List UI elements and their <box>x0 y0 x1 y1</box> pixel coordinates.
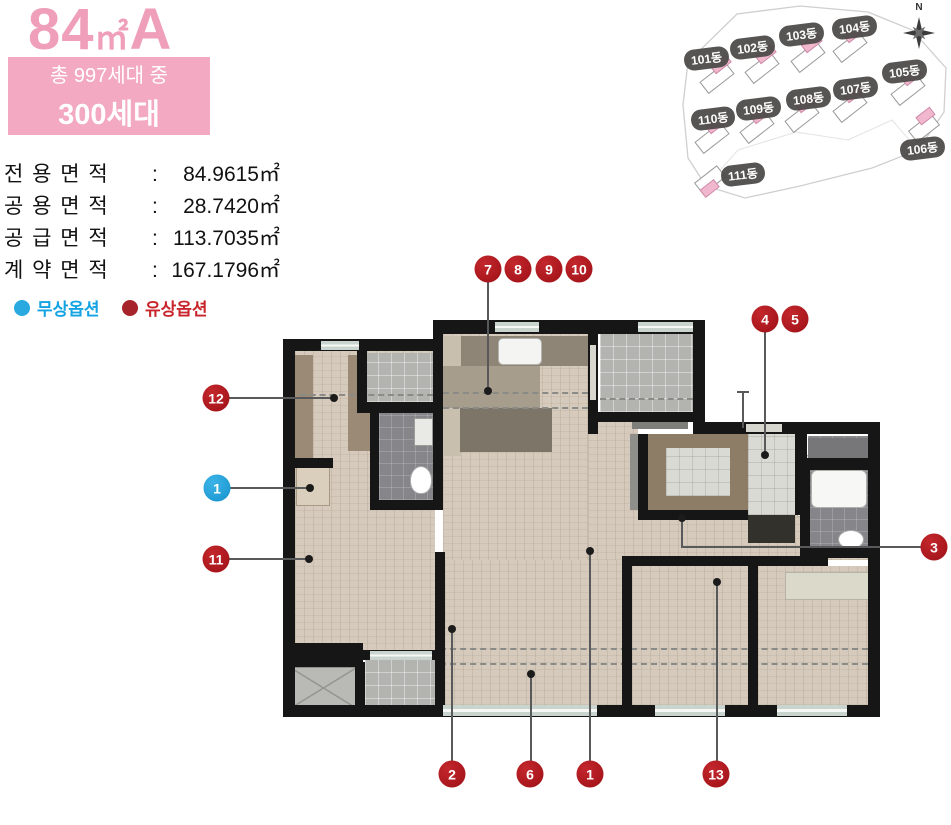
colon: : <box>152 163 164 187</box>
area-label: 공급면적 <box>4 222 152 252</box>
dashed-line <box>443 392 588 394</box>
balcony2-door <box>590 345 596 400</box>
wall <box>748 556 758 705</box>
marker-11: 11 <box>203 546 230 573</box>
option-point <box>306 484 314 492</box>
floor-bedroom2 <box>632 566 748 705</box>
leader-line <box>764 332 766 455</box>
option-point <box>713 578 721 586</box>
wall <box>800 458 810 558</box>
marker-12: 12 <box>203 385 230 412</box>
area-value: 28.7420㎡ <box>164 190 280 220</box>
wall <box>638 434 648 520</box>
option-point <box>484 387 492 395</box>
area-label: 계약면적 <box>4 254 152 284</box>
leader-line <box>589 551 591 761</box>
dining-rug <box>460 408 552 452</box>
wall <box>695 422 880 434</box>
wall <box>355 662 365 712</box>
dashed-line <box>600 398 693 400</box>
unit-type-title: 84㎡A <box>28 0 172 63</box>
wardrobe <box>295 355 313 460</box>
free-option-dot-icon <box>14 300 30 316</box>
marker-1-free: 1 <box>204 475 231 502</box>
leader-line <box>229 558 309 560</box>
colon: : <box>152 259 164 283</box>
bath1-sink <box>414 418 433 446</box>
wall <box>588 412 705 422</box>
leader-line <box>451 629 453 761</box>
wall <box>370 413 379 508</box>
bath2-tub <box>811 470 867 508</box>
badge-count: 300세대 <box>8 91 210 133</box>
option-point <box>678 514 686 522</box>
window <box>321 341 359 350</box>
area-row-contract: 계약면적:167.1796㎡ <box>4 254 280 284</box>
leader-line <box>681 546 921 548</box>
entrance-mat <box>748 515 795 543</box>
leader-line <box>229 397 334 399</box>
window-bedroom2 <box>655 705 725 716</box>
option-point <box>448 625 456 633</box>
legend-label: 유상옵션 <box>145 295 208 320</box>
wall <box>360 402 443 413</box>
door-axis-cross <box>737 391 749 393</box>
bath1-toilet <box>410 466 432 494</box>
window <box>638 322 693 332</box>
area-label: 전용면적 <box>4 158 152 188</box>
door-axis-line <box>742 392 744 428</box>
wall <box>370 500 443 510</box>
wall <box>435 552 445 705</box>
site-map: N 101동 102동 103동 104동 105동 106동 107동 108… <box>678 0 951 205</box>
compass-north-label: N <box>915 2 922 13</box>
area-value: 113.7035㎡ <box>164 222 280 252</box>
legend-paid-option: 유상옵션 <box>122 295 208 320</box>
floorplan-page: 84㎡A 총 997세대 중 300세대 전용면적:84.9615㎡ 공용면적:… <box>0 0 951 825</box>
marker-13: 13 <box>703 761 730 788</box>
wall <box>283 339 443 351</box>
title-suffix: A <box>130 0 173 62</box>
kitchen-cooktop <box>498 338 542 365</box>
wall <box>748 556 828 566</box>
wall <box>283 458 333 468</box>
option-point <box>330 394 338 402</box>
wall <box>622 556 752 566</box>
room-balcony1 <box>365 658 437 712</box>
legend-free-option: 무상옵션 <box>14 295 100 320</box>
kitchen-area-rug <box>443 366 540 408</box>
dashed-line <box>440 648 868 650</box>
marker-5: 5 <box>782 306 809 333</box>
room-entrance <box>748 422 795 515</box>
room-entry-storage <box>648 434 748 510</box>
marker-2: 2 <box>439 761 466 788</box>
area-label: 공용면적 <box>4 190 152 220</box>
room-escape-hatch <box>290 667 357 709</box>
window-living <box>443 705 597 716</box>
colon: : <box>152 227 164 251</box>
option-point <box>305 555 313 563</box>
badge-total: 총 997세대 중 <box>8 59 210 88</box>
leader-line <box>681 518 683 548</box>
wall <box>638 510 748 520</box>
floor-living-room <box>445 560 622 705</box>
wall <box>800 458 872 470</box>
wall <box>622 556 632 705</box>
area-row-supply: 공급면적:113.7035㎡ <box>4 222 280 252</box>
window-balcony1 <box>370 651 432 660</box>
title-number: 84 <box>28 0 95 62</box>
legend-label: 무상옵션 <box>37 295 100 320</box>
paid-option-dot-icon <box>122 300 138 316</box>
marker-10: 10 <box>566 256 593 283</box>
option-point <box>527 670 535 678</box>
option-point <box>586 547 594 555</box>
wall <box>283 643 363 667</box>
option-point <box>761 451 769 459</box>
leader-line <box>487 282 489 390</box>
leader-line <box>230 487 310 489</box>
marker-7: 7 <box>475 256 502 283</box>
area-row-exclusive: 전용면적:84.9615㎡ <box>4 158 280 188</box>
escape-hatch-x <box>291 668 356 708</box>
marker-6: 6 <box>517 761 544 788</box>
leader-line <box>716 582 718 761</box>
household-badge: 총 997세대 중 300세대 <box>8 57 210 135</box>
wall <box>433 334 443 510</box>
marker-1-paid: 1 <box>577 761 604 788</box>
marker-8: 8 <box>505 256 532 283</box>
colon: : <box>152 195 164 219</box>
leader-line <box>530 674 532 761</box>
area-value: 84.9615㎡ <box>164 158 280 188</box>
window-bedroom3 <box>777 705 847 716</box>
marker-9: 9 <box>536 256 563 283</box>
dashed-line <box>440 663 868 665</box>
area-value: 167.1796㎡ <box>164 254 280 284</box>
dashed-line <box>443 407 588 409</box>
marker-3: 3 <box>921 534 948 561</box>
marker-4: 4 <box>752 306 779 333</box>
area-row-common: 공용면적:28.7420㎡ <box>4 190 280 220</box>
bedroom3-desk <box>785 572 870 600</box>
window <box>495 322 539 332</box>
title-unit: ㎡ <box>95 19 130 57</box>
